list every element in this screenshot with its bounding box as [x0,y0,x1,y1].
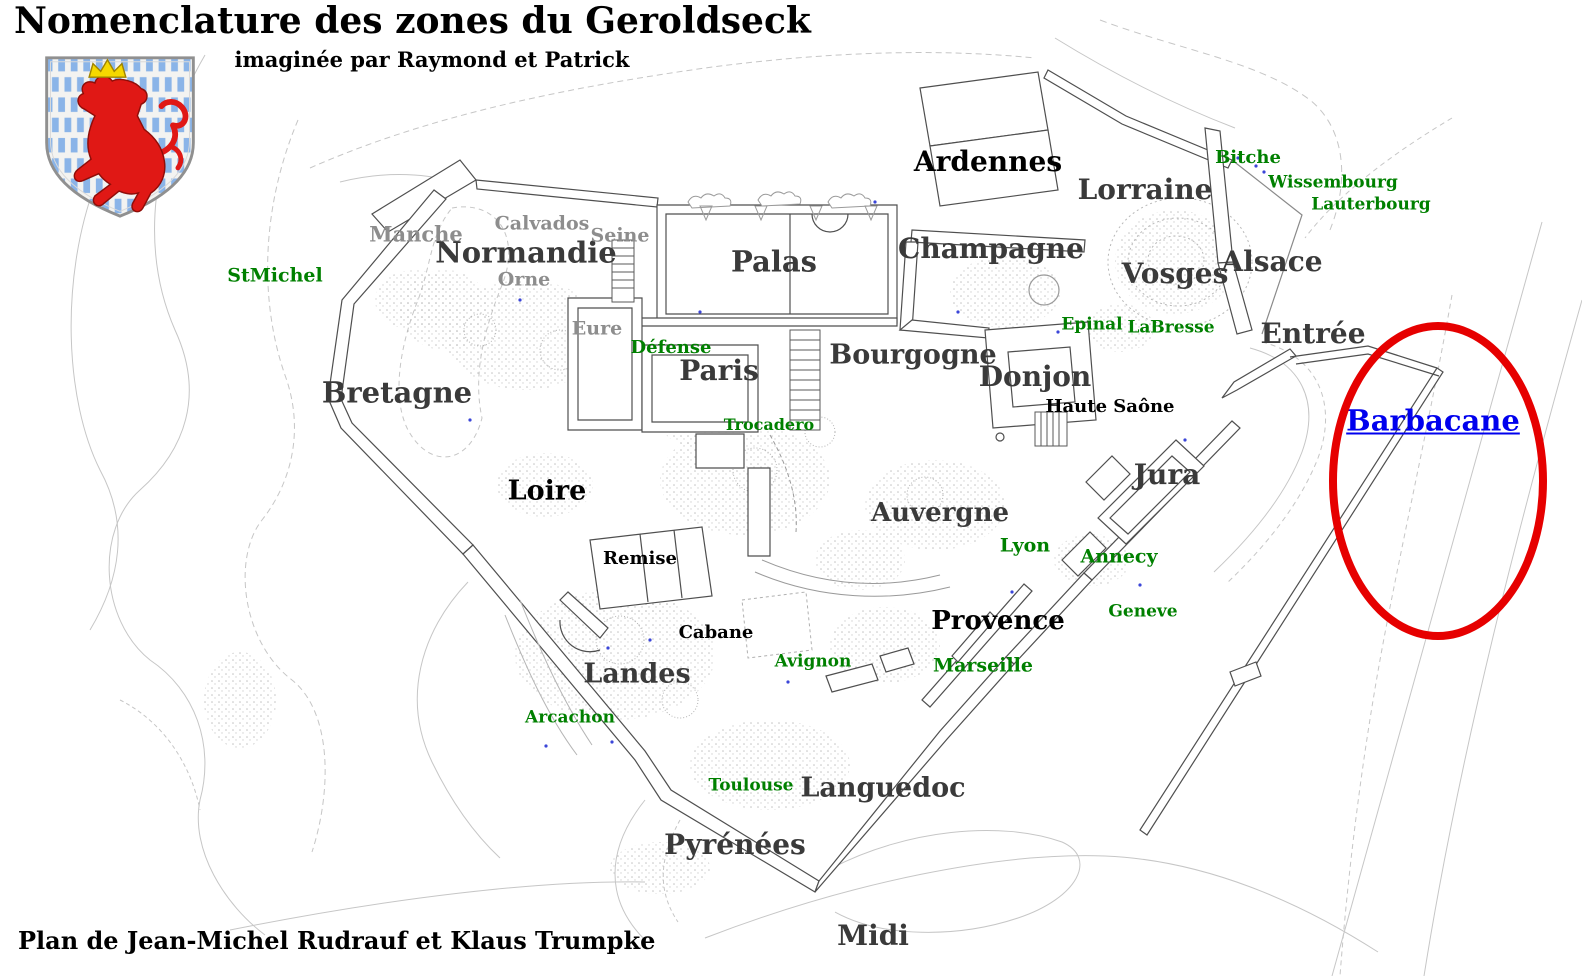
zone-label-landes: Landes [583,661,690,688]
zone-label-provence: Provence [931,608,1065,634]
zone-label-orne: Orne [498,271,550,290]
highlight-ellipse [1329,322,1547,640]
zone-label-loire: Loire [508,478,587,505]
zone-label-bretagne: Bretagne [322,379,472,408]
zone-label-alsace: Alsace [1221,248,1322,276]
zone-label-paris: Paris [679,357,759,385]
zone-label-calvados: Calvados [495,215,590,234]
zone-label-vosges: Vosges [1122,260,1229,288]
zone-label-bourgogne: Bourgogne [829,342,996,369]
zone-label-geneve: Geneve [1108,604,1177,621]
zone-label-seine: Seine [591,227,650,246]
zone-label-lauterbourg: Lauterbourg [1311,197,1430,214]
zone-label-midi: Midi [837,922,909,950]
zone-label-pyr-n-es: Pyrénées [664,831,806,859]
zone-label-jura: Jura [1134,461,1201,489]
zone-label-toulouse: Toulouse [709,778,794,795]
zone-label-palas: Palas [731,248,817,277]
zone-label-cabane: Cabane [679,624,754,642]
zone-label-eure: Eure [572,320,622,339]
zone-label-epinal: Epinal [1061,317,1122,334]
zone-label-labresse: LaBresse [1127,320,1214,337]
zone-label-normandie: Normandie [435,239,616,268]
zone-label-auvergne: Auvergne [871,500,1009,526]
page-subtitle: imaginée par Raymond et Patrick [235,47,630,72]
zone-label-avignon: Avignon [775,654,852,671]
zone-label-donjon: Donjon [979,363,1091,391]
plan-credit: Plan de Jean-Michel Rudrauf et Klaus Tru… [18,926,655,955]
zone-label-languedoc: Languedoc [800,775,965,802]
zone-label-ardennes: Ardennes [914,148,1062,176]
zone-label-entr-e: Entrée [1260,320,1365,348]
geroldseck-map-page: Nomenclature des zones du Geroldseck ima… [0,0,1582,976]
zone-label-annecy: Annecy [1080,548,1157,567]
zone-label-marseille: Marseille [933,657,1033,676]
zone-label-trocadero: Trocadero [724,417,814,433]
zone-label-champagne: Champagne [898,235,1084,263]
page-title: Nomenclature des zones du Geroldseck [14,0,811,42]
zone-label-lyon: Lyon [1000,537,1050,556]
zone-label-remise: Remise [603,550,677,568]
zone-label-bitche: Bitche [1215,149,1281,167]
zone-label-haute-sa-ne: Haute Saône [1046,398,1175,416]
zone-label-wissembourg: Wissembourg [1268,175,1398,192]
zone-label-stmichel: StMichel [227,267,322,286]
zone-label-lorraine: Lorraine [1078,176,1213,204]
coat-of-arms-luxembourg-lion [42,54,198,220]
zone-label-arcachon: Arcachon [525,710,615,727]
